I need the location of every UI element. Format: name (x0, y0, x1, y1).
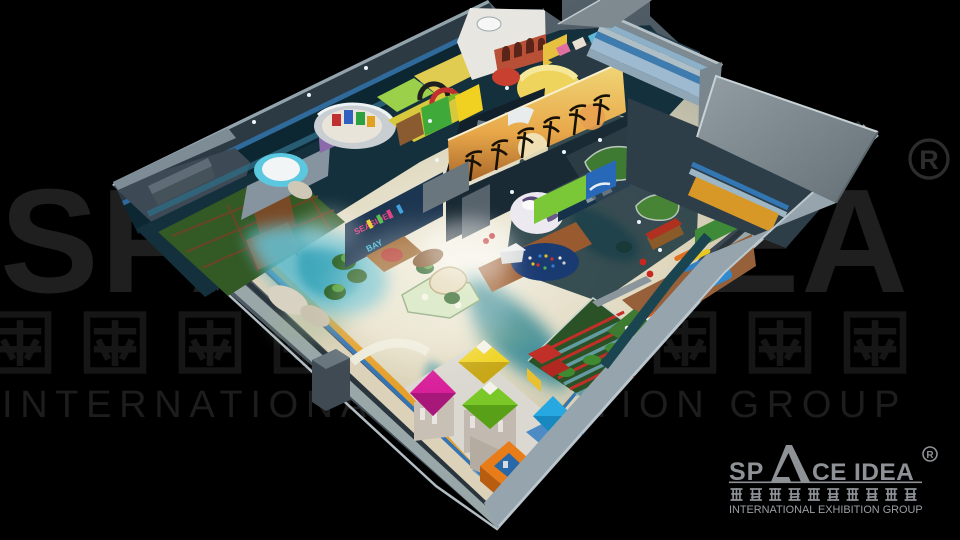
svg-text:R: R (926, 450, 934, 461)
svg-text:INTERNATIONAL EXHIBITION GROUP: INTERNATIONAL EXHIBITION GROUP (729, 504, 923, 516)
svg-text:R: R (919, 145, 939, 175)
